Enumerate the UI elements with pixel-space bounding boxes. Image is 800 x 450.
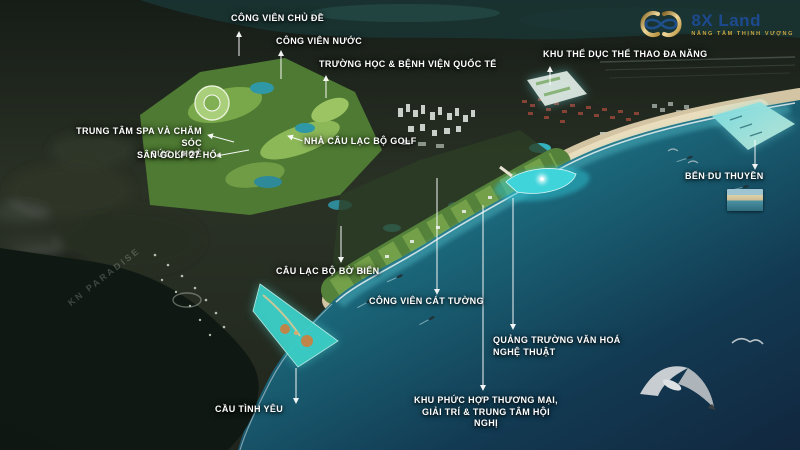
brand-logo: 8X Land NÂNG TẦM THỊNH VƯỢNG [635,6,794,42]
callout-culture-square: QUẢNG TRƯỜNG VĂN HOÁ NGHỆ THUẬT [493,335,621,358]
callout-sports-complex: KHU THỂ DỤC THỂ THAO ĐA NĂNG [543,49,707,61]
callout-commercial-complex: KHU PHỨC HỢP THƯƠNG MẠI, GIẢI TRÍ & TRUN… [413,395,559,430]
callout-beach-club: CÂU LẠC BỘ BỜ BIỂN [276,266,379,278]
brand-tagline: NÂNG TẦM THỊNH VƯỢNG [691,31,794,37]
masterplan-poster: CÔNG VIÊN CHỦ ĐỀ CÔNG VIÊN NƯỚC TRƯỜNG H… [0,0,800,450]
callout-golf-clubhouse: NHÀ CÂU LẠC BỘ GOLF [304,136,417,148]
callout-school-hospital: TRƯỜNG HỌC & BỆNH VIỆN QUỐC TẾ [319,59,497,71]
callout-water-park: CÔNG VIÊN NƯỚC [276,36,362,48]
brand-name: 8X Land [691,12,794,29]
callout-theme-park: CÔNG VIÊN CHỦ ĐỀ [231,13,324,25]
callout-love-bridge: CẦU TÌNH YÊU [215,404,283,416]
marina-inset-photo [727,189,763,211]
callout-golf-course: SÂN GOLF 27 HỐ [137,150,217,162]
callout-cat-tuong-park: CÔNG VIÊN CÁT TƯỜNG [369,296,484,308]
infinity-logo-icon [635,6,687,42]
callout-marina: BẾN DU THUYỀN [685,171,764,183]
